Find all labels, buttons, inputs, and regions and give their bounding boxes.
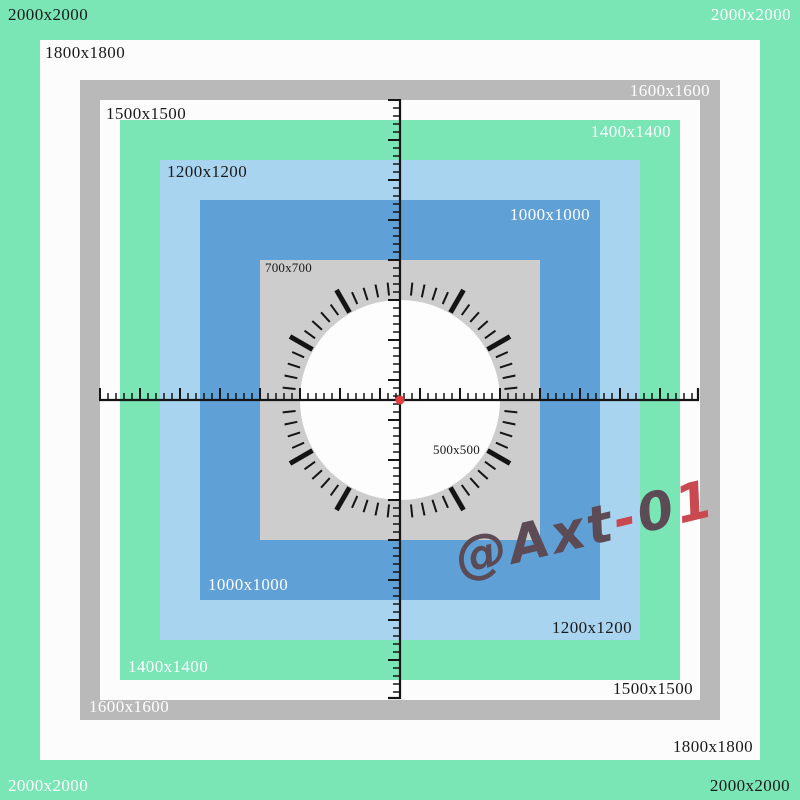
test-pattern-canvas: 2000x2000 2000x2000 2000x2000 2000x2000 …	[0, 0, 800, 800]
label-1000-top-right: 1000x1000	[510, 206, 590, 223]
label-2000-top-left: 2000x2000	[8, 6, 88, 23]
label-2000-bottom-right: 2000x2000	[710, 777, 790, 794]
label-2000-top-right: 2000x2000	[711, 6, 791, 23]
label-1000-bottom-left: 1000x1000	[208, 576, 288, 593]
label-700-top-left: 700x700	[265, 261, 312, 274]
label-1600-bottom-left: 1600x1600	[89, 698, 169, 715]
label-1200-top-left: 1200x1200	[167, 163, 247, 180]
label-1500-top-left: 1500x1500	[106, 105, 186, 122]
circle-500	[300, 300, 500, 500]
label-1400-top-right: 1400x1400	[591, 123, 671, 140]
label-2000-bottom-left: 2000x2000	[8, 777, 88, 794]
label-1500-bottom-right: 1500x1500	[613, 680, 693, 697]
label-1600-top-right: 1600x1600	[630, 82, 710, 99]
label-1800-bottom-right: 1800x1800	[673, 738, 753, 755]
label-1400-bottom-left: 1400x1400	[128, 658, 208, 675]
label-1800-top-left: 1800x1800	[45, 44, 125, 61]
label-1200-bottom-right: 1200x1200	[552, 619, 632, 636]
label-500-center: 500x500	[433, 443, 480, 456]
